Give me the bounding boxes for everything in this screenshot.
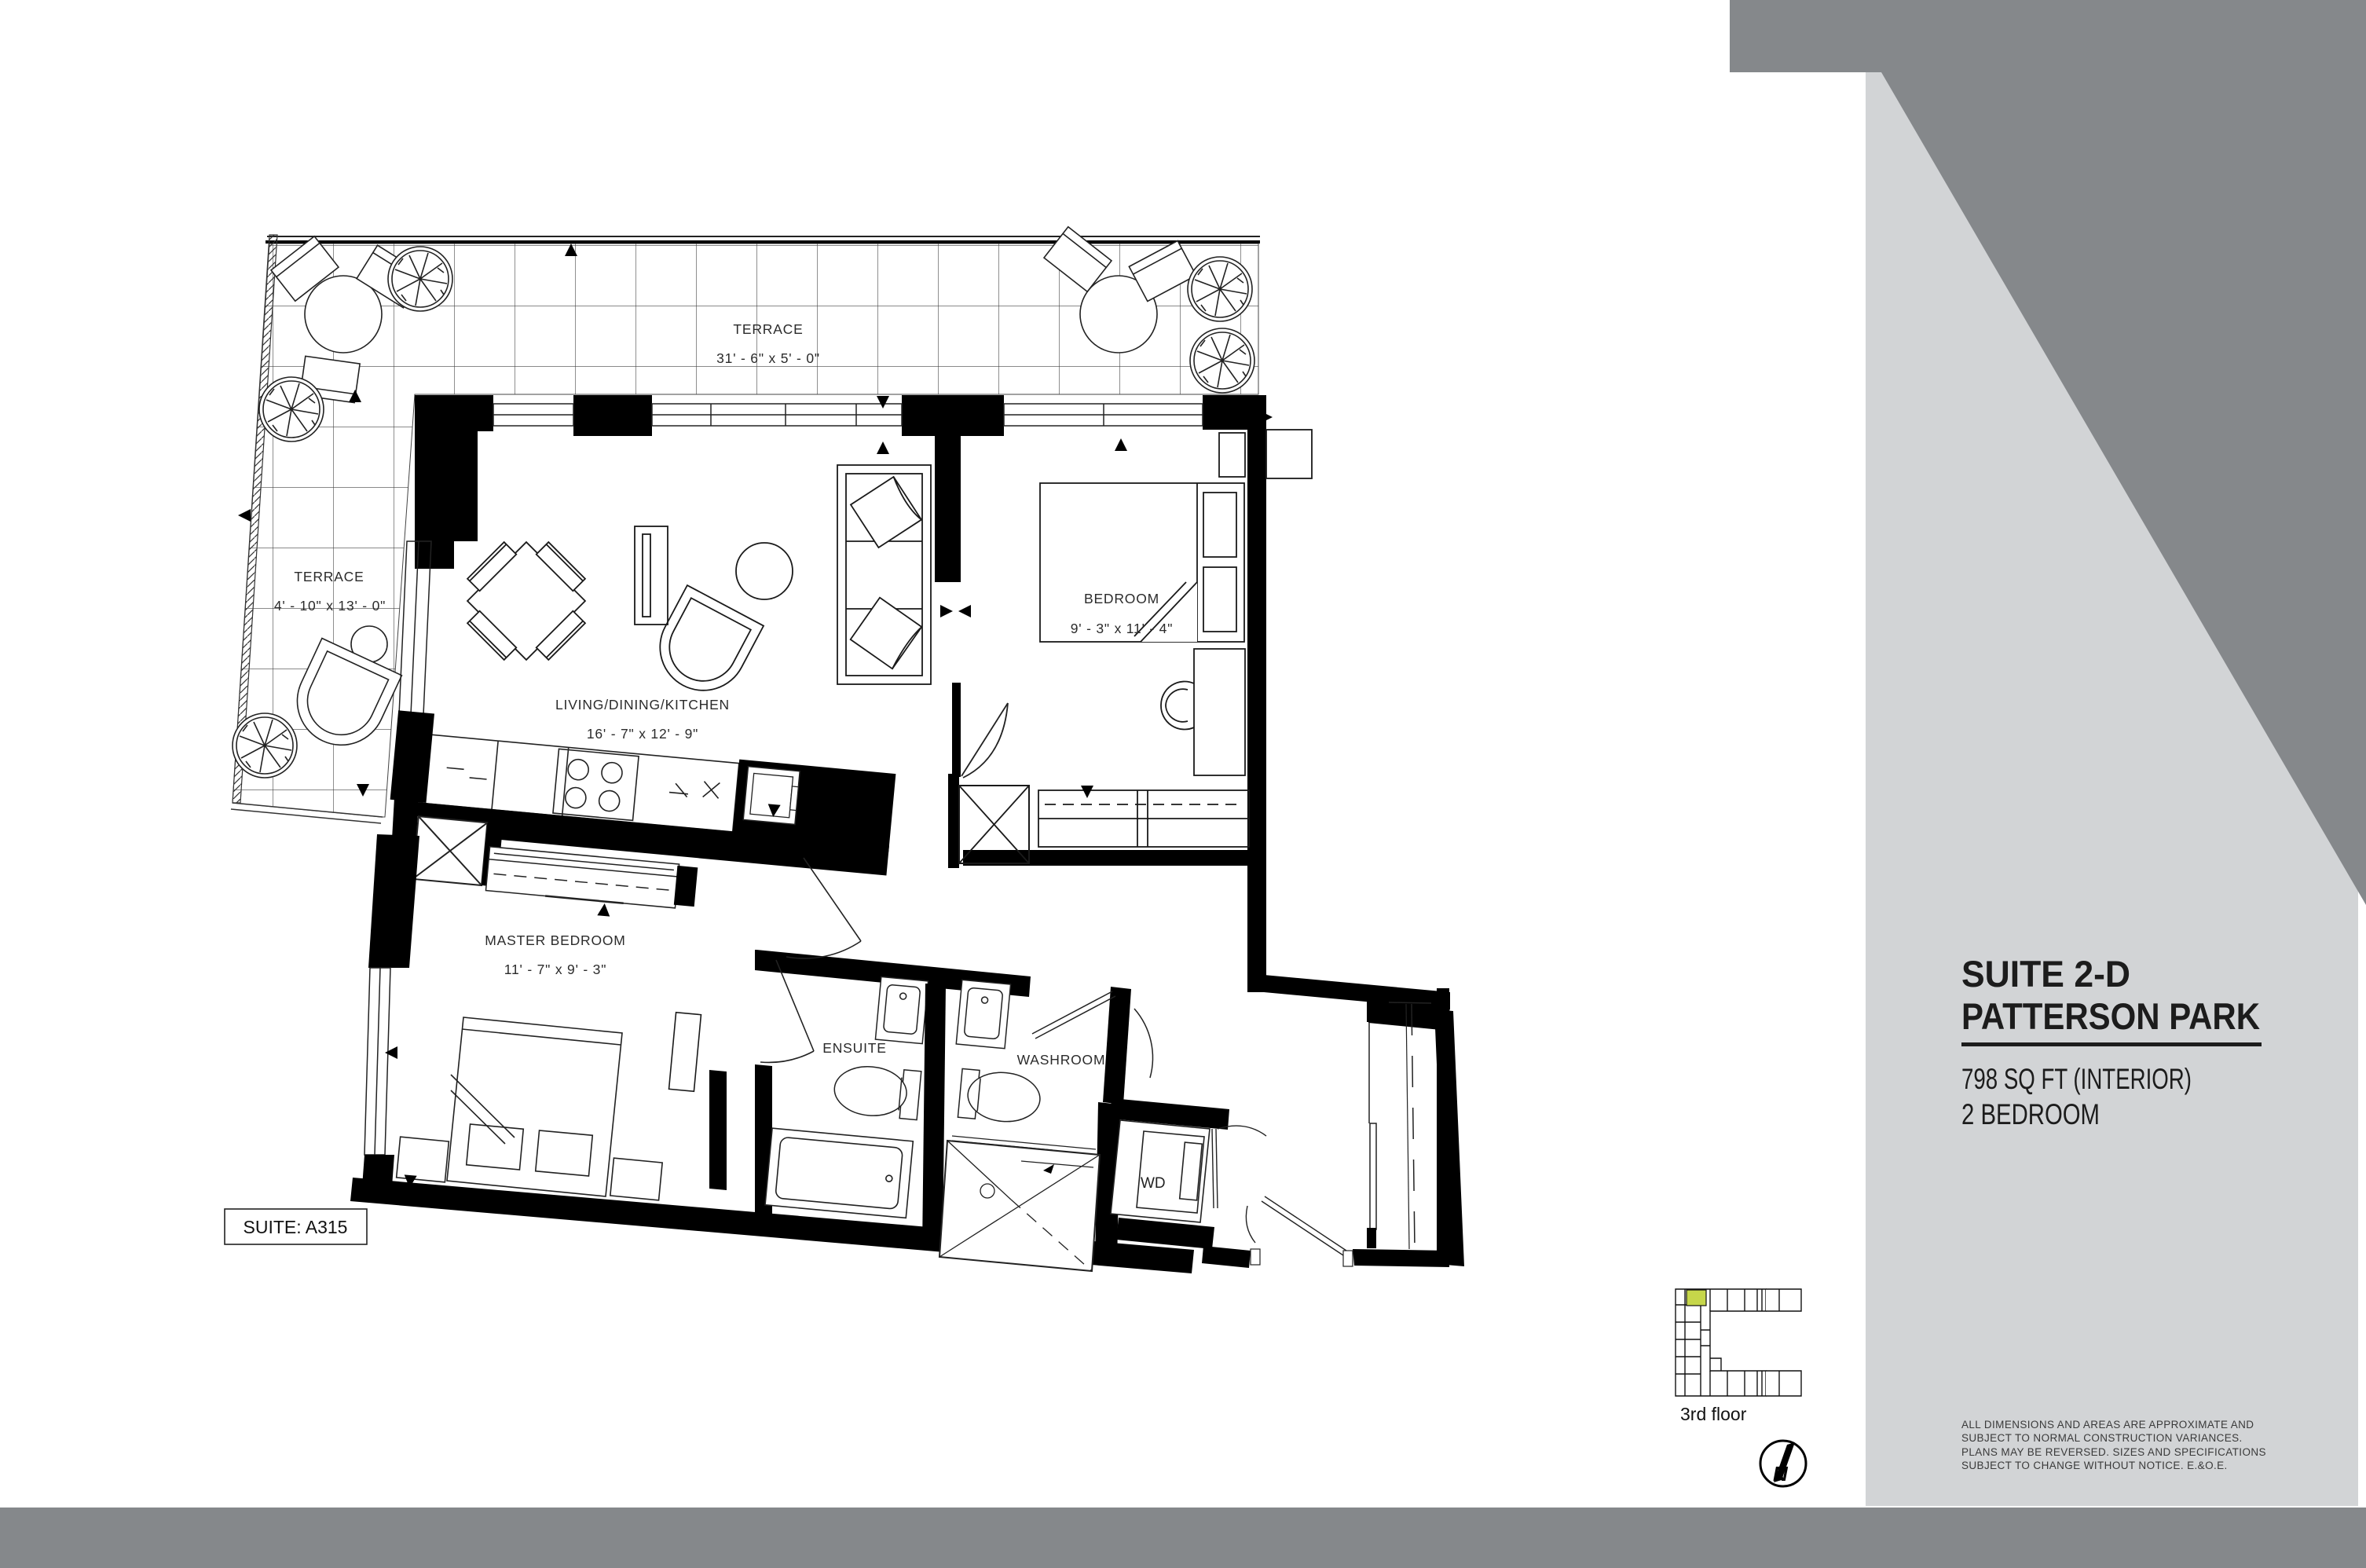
svg-text:MASTER BEDROOM: MASTER BEDROOM [485, 932, 625, 948]
svg-text:N: N [1773, 1462, 1789, 1486]
svg-text:SUBJECT TO CHANGE WITHOUT NOTI: SUBJECT TO CHANGE WITHOUT NOTICE. E.&O.E… [1961, 1460, 2228, 1471]
svg-text:SUBJECT TO NORMAL CONSTRUCTION: SUBJECT TO NORMAL CONSTRUCTION VARIANCES… [1961, 1432, 2243, 1444]
svg-text:PATTERSON PARK: PATTERSON PARK [1961, 995, 2260, 1037]
svg-text:11' - 7" x 9' - 3": 11' - 7" x 9' - 3" [504, 962, 606, 977]
svg-text:31' - 6" x 5' - 0": 31' - 6" x 5' - 0" [716, 350, 820, 366]
svg-text:BEDROOM: BEDROOM [1084, 591, 1159, 606]
svg-text:ENSUITE: ENSUITE [822, 1040, 886, 1056]
svg-text:PLANS MAY BE REVERSED. SIZES A: PLANS MAY BE REVERSED. SIZES AND SPECIFI… [1961, 1446, 2266, 1458]
svg-text:ALL DIMENSIONS AND AREAS ARE A: ALL DIMENSIONS AND AREAS ARE APPROXIMATE… [1961, 1419, 2254, 1431]
svg-text:SUITE: A315: SUITE: A315 [244, 1217, 348, 1237]
svg-text:9' - 3" x 11' - 4": 9' - 3" x 11' - 4" [1071, 621, 1173, 636]
svg-text:798 SQ FT (INTERIOR): 798 SQ FT (INTERIOR) [1961, 1063, 2192, 1095]
svg-text:TERRACE: TERRACE [733, 321, 803, 337]
svg-text:SUITE 2-D: SUITE 2-D [1961, 953, 2130, 995]
svg-text:LIVING/DINING/KITCHEN: LIVING/DINING/KITCHEN [555, 697, 730, 713]
svg-text:3rd floor: 3rd floor [1680, 1404, 1747, 1424]
svg-text:TERRACE: TERRACE [294, 569, 364, 584]
svg-text:WD: WD [1141, 1175, 1166, 1192]
svg-text:16' - 7" x 12' - 9": 16' - 7" x 12' - 9" [587, 726, 698, 742]
svg-text:2 BEDROOM: 2 BEDROOM [1961, 1098, 2100, 1130]
svg-text:4' - 10" x 13' - 0": 4' - 10" x 13' - 0" [274, 598, 386, 614]
svg-text:WASHROOM: WASHROOM [1017, 1052, 1106, 1068]
